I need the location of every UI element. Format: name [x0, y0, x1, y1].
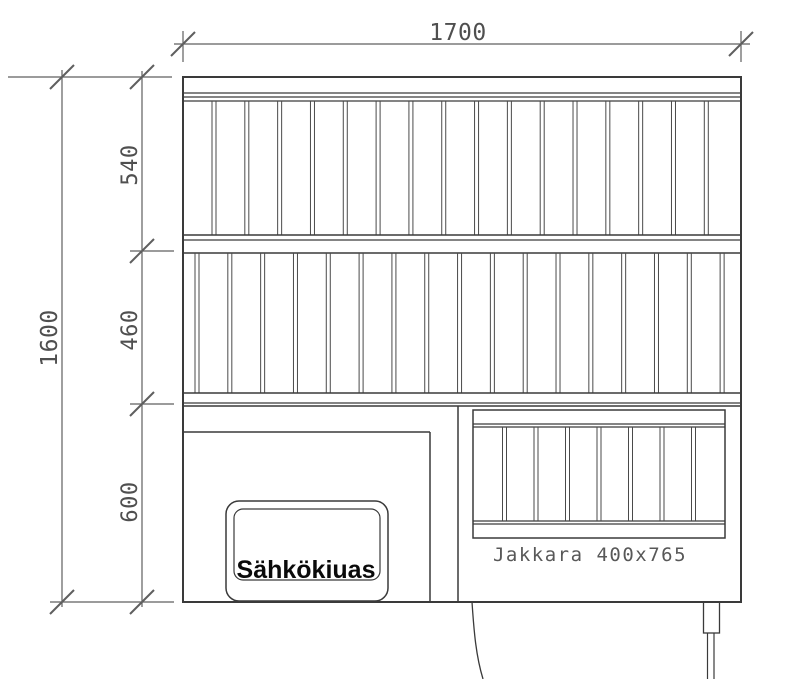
- stool-outline: [473, 410, 725, 538]
- sauna-bench-technical-drawing: 1700 1600 540 460 600 Sähkökiuas Jakkara…: [0, 0, 795, 679]
- heater-label: Sähkökiuas: [237, 556, 376, 584]
- stool-label: Jakkara 400x765: [493, 544, 687, 566]
- dim-total-height-label: 1600: [37, 309, 63, 366]
- dim-segment-top-label: 540: [118, 144, 143, 185]
- dim-total-width-label: 1700: [429, 20, 486, 46]
- dim-segment-bottom-label: 600: [118, 481, 143, 522]
- drawing-geometry: [8, 31, 753, 679]
- power-cable: [472, 602, 483, 679]
- heater-outer-outline: [226, 501, 388, 601]
- dim-segment-middle-label: 460: [118, 309, 143, 350]
- sauna-elevation-drawing: 1700 1600 540 460 600 Sähkökiuas Jakkara…: [0, 0, 795, 679]
- conduit-box: [704, 602, 720, 633]
